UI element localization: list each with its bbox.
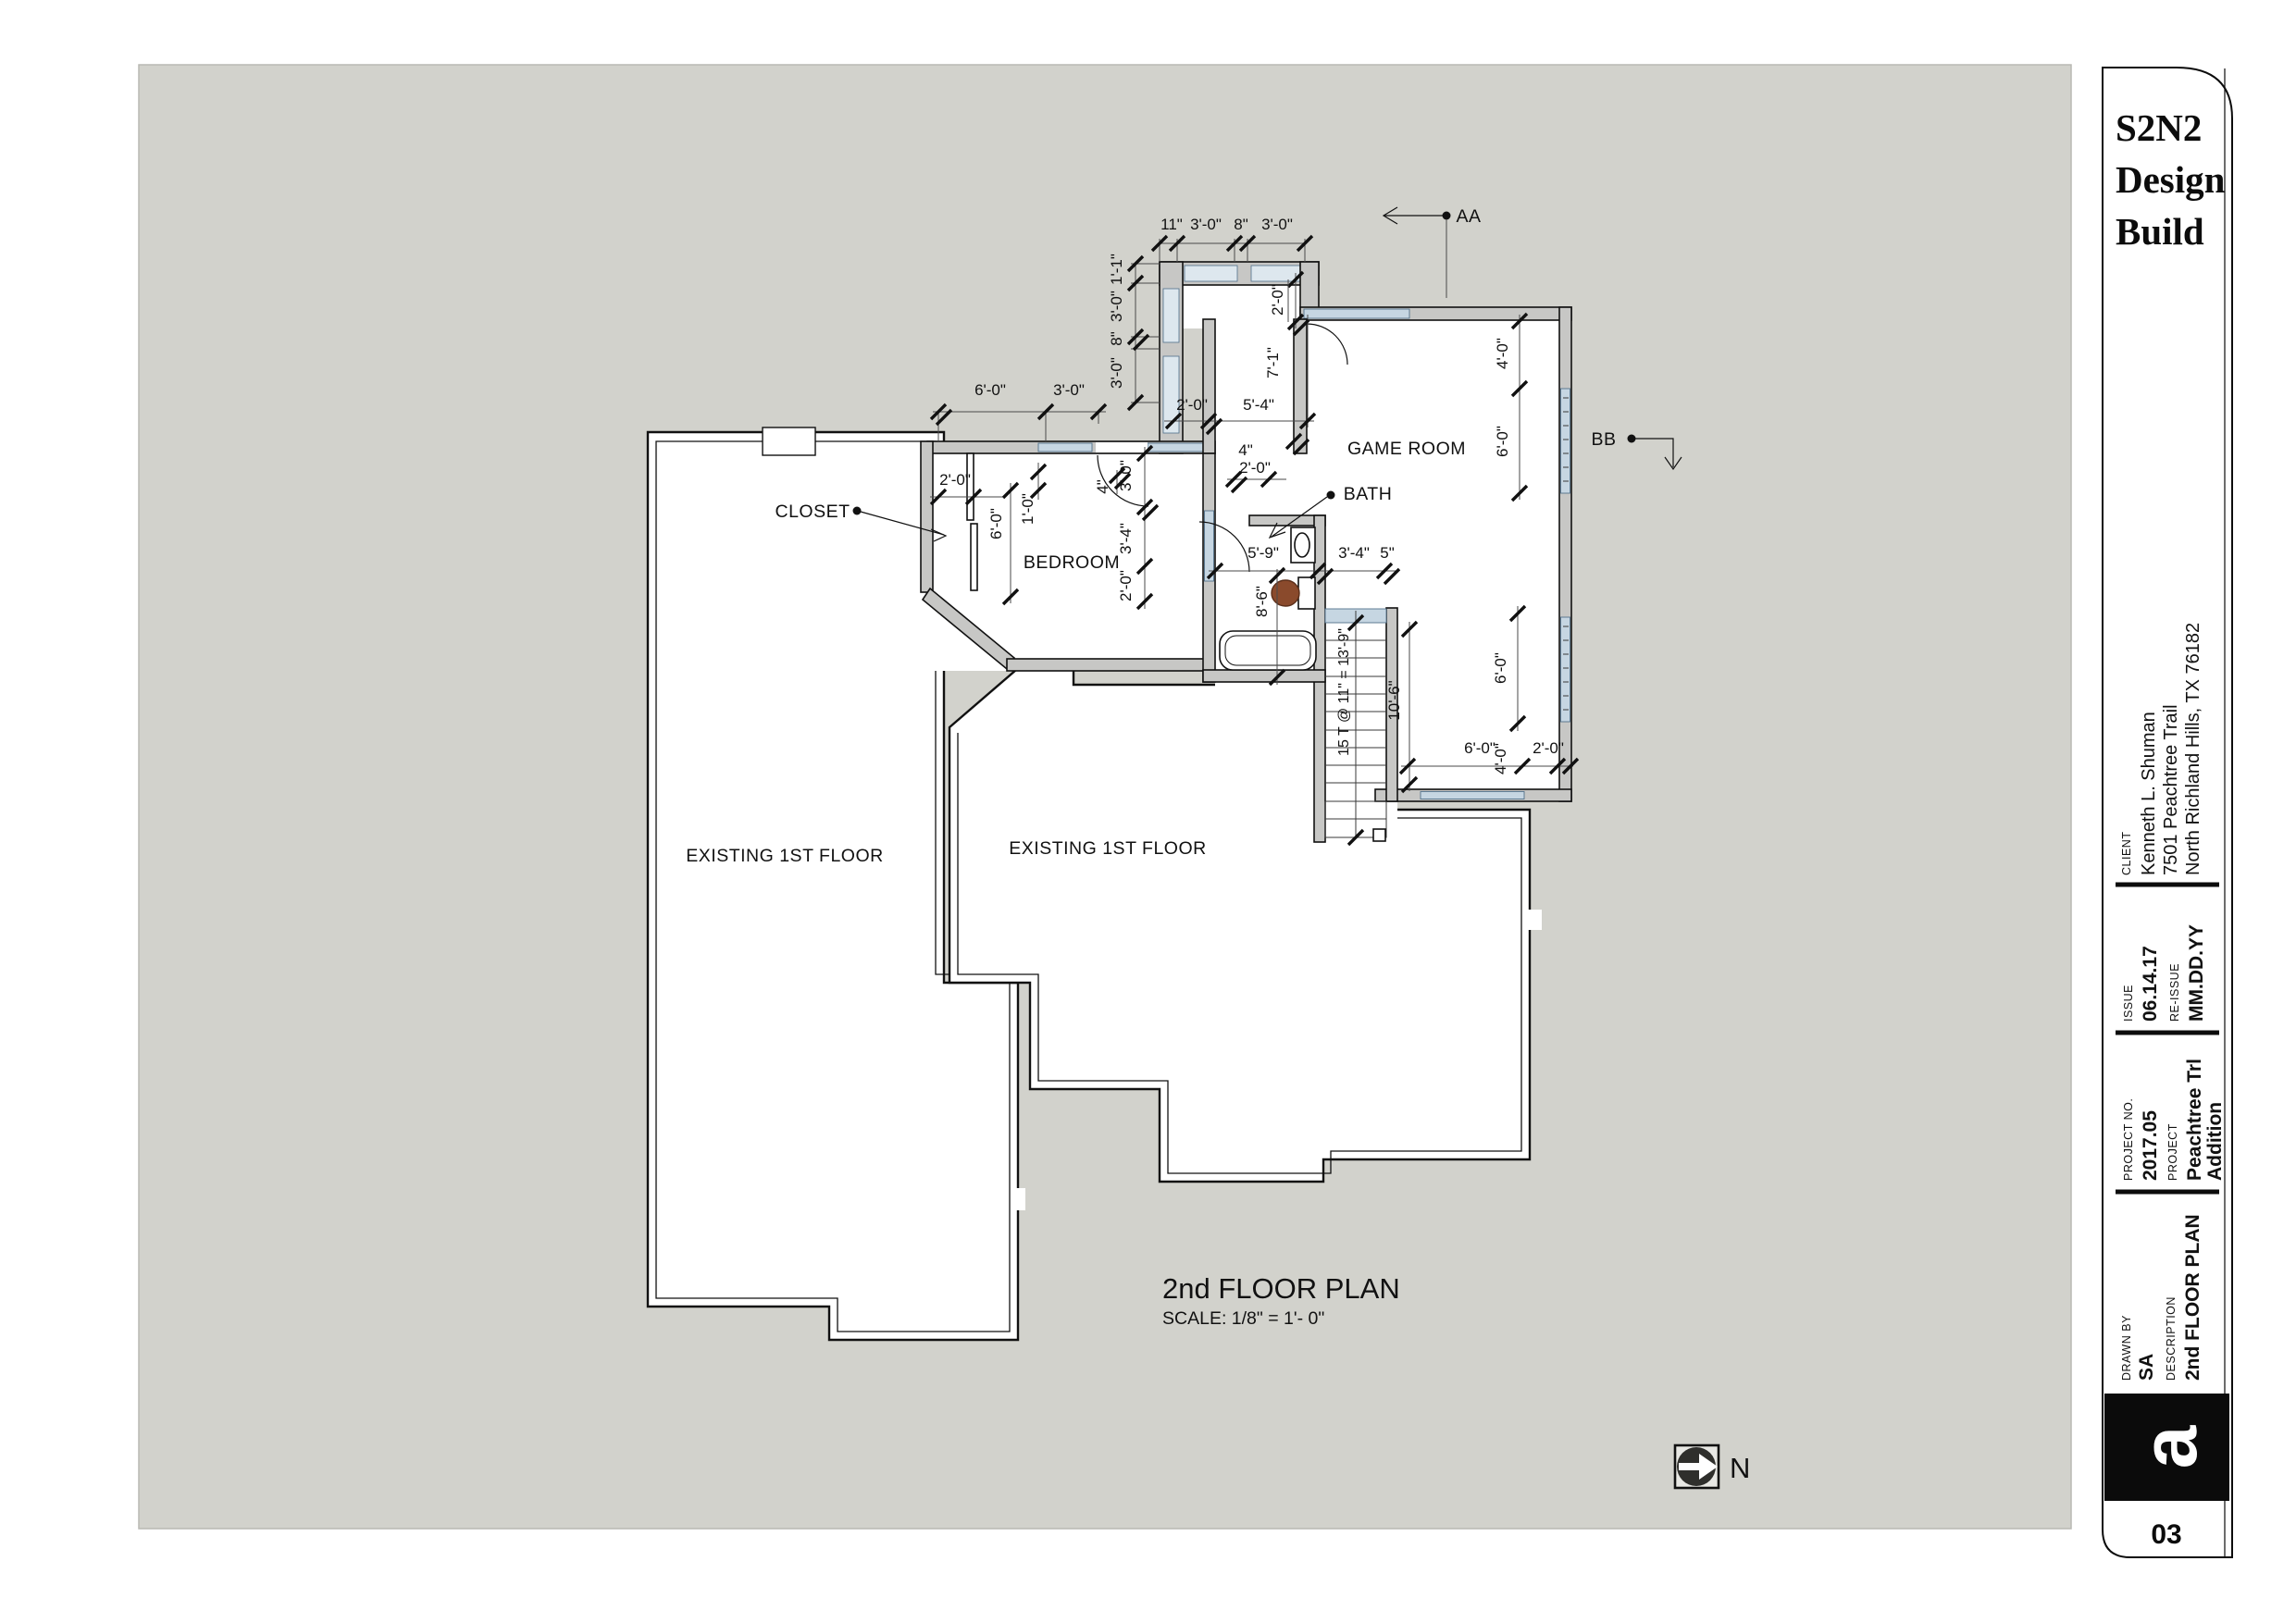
dim-label: 3'-0" bbox=[1053, 381, 1085, 399]
stair-newel bbox=[1373, 829, 1385, 841]
logo-mark: a bbox=[2126, 1424, 2213, 1468]
game-room-north-window bbox=[1304, 309, 1409, 318]
dim-label: 8" bbox=[1108, 331, 1125, 346]
dim-label: 4'-0" bbox=[1494, 338, 1511, 369]
dim-label: 4" bbox=[1238, 441, 1253, 459]
dim-label: 11" bbox=[1160, 216, 1183, 233]
section-label-aa: AA bbox=[1456, 206, 1481, 227]
dim-label: 4" bbox=[1094, 479, 1111, 494]
dim-label: 2'-0" bbox=[1176, 396, 1208, 414]
dim-label: 3'-0" bbox=[1108, 357, 1125, 389]
closet-west-wall bbox=[921, 441, 933, 592]
logo-line: Design bbox=[2116, 158, 2226, 201]
reissue-label: RE-ISSUE bbox=[2168, 963, 2181, 1022]
sheet-number: 03 bbox=[2151, 1519, 2181, 1550]
drawn-by: SA bbox=[2136, 1354, 2157, 1381]
description: 2nd FLOOR PLAN bbox=[2182, 1214, 2203, 1381]
bedroom-south-wall bbox=[1007, 659, 1205, 671]
dim-label: 3'-4" bbox=[1117, 523, 1135, 554]
bathtub bbox=[1220, 631, 1316, 670]
client-city: North Richland Hills, TX 76182 bbox=[2183, 623, 2203, 875]
project-name: Peachtree Trl bbox=[2184, 1059, 2205, 1181]
issue-date: 06.14.17 bbox=[2140, 946, 2161, 1022]
floor-plan-canvas: GAME ROOM BATH CLOSET BEDROOM EXISTING 1… bbox=[0, 0, 2296, 1623]
room-label-existing-center: EXISTING 1ST FLOOR bbox=[1009, 838, 1206, 859]
plan-title: 2nd FLOOR PLAN bbox=[1162, 1272, 1400, 1305]
dim-label: 3'-0" bbox=[1190, 216, 1222, 233]
dim-label: 3'-0" bbox=[1261, 216, 1293, 233]
dim-label: 1'-0" bbox=[1019, 493, 1036, 525]
plan-scale: SCALE: 1/8" = 1'- 0" bbox=[1162, 1308, 1324, 1329]
title-block: S2N2 Design Build CLIENT Kenneth L. Shum… bbox=[2103, 68, 2232, 1557]
room-label-closet: CLOSET bbox=[775, 502, 850, 522]
drawn-by-label: DRAWN BY bbox=[2120, 1315, 2133, 1381]
game-room-east-wall bbox=[1559, 307, 1571, 801]
room-label-existing-left: EXISTING 1ST FLOOR bbox=[686, 846, 883, 866]
section-label-bb: BB bbox=[1591, 429, 1616, 450]
logo-line: Build bbox=[2116, 210, 2204, 253]
client-address: 7501 Peachtree Trail bbox=[2161, 704, 2181, 875]
room-label-bath: BATH bbox=[1344, 484, 1393, 504]
dim-label: 3'-0" bbox=[1117, 460, 1135, 491]
north-label: N bbox=[1730, 1452, 1750, 1484]
game-room-south-window bbox=[1421, 792, 1524, 799]
door-gap bbox=[1011, 1188, 1025, 1210]
dim-label: 6'-0" bbox=[987, 508, 1005, 539]
bay-window bbox=[1185, 266, 1237, 281]
door-gap bbox=[1527, 910, 1542, 930]
project-name2: Addition bbox=[2204, 1102, 2226, 1181]
north-arrow: N bbox=[1675, 1445, 1750, 1488]
dim-label: 10'-6" bbox=[1385, 680, 1403, 720]
dim-label: 2'-0" bbox=[1533, 739, 1564, 757]
tub-south-wall bbox=[1203, 670, 1325, 682]
bay-west-window bbox=[1163, 289, 1179, 342]
dim-label: 6'-0" bbox=[1464, 739, 1496, 757]
reissue-date: MM.DD.YY bbox=[2186, 924, 2207, 1022]
description-label: DESCRIPTION bbox=[2165, 1296, 2178, 1381]
client-name: Kenneth L. Shuman bbox=[2139, 712, 2159, 875]
chimney bbox=[763, 427, 815, 455]
bay-window bbox=[1251, 266, 1307, 281]
dim-label: 5" bbox=[1380, 544, 1395, 562]
room-label-game-room: GAME ROOM bbox=[1347, 439, 1466, 459]
dim-label: 5'-9" bbox=[1247, 544, 1279, 562]
dim-label: 2'-0" bbox=[1117, 570, 1135, 601]
bedroom-window bbox=[1038, 443, 1092, 452]
sink bbox=[1295, 533, 1309, 557]
toilet-bowl bbox=[1272, 580, 1299, 606]
project-label: PROJECT bbox=[2166, 1123, 2179, 1181]
closet-door-panel bbox=[971, 524, 977, 590]
game-room-east-window bbox=[1561, 389, 1570, 493]
dim-label: 2'-0" bbox=[1269, 284, 1286, 316]
dim-label: 6'-0" bbox=[1492, 652, 1509, 684]
dim-label: 6'-0" bbox=[1494, 426, 1511, 457]
toilet-tank bbox=[1298, 577, 1315, 609]
bedroom-door-opening bbox=[1096, 442, 1148, 452]
dim-label: 2'-0" bbox=[1239, 459, 1271, 477]
dim-label: 2'-0" bbox=[939, 471, 971, 489]
stair-note: 15 T @ 11" = 13'-9" bbox=[1336, 628, 1352, 756]
dim-label: 3'-4" bbox=[1338, 544, 1370, 562]
dim-label: 4'-0" bbox=[1492, 743, 1509, 774]
client-label: CLIENT bbox=[2120, 832, 2133, 875]
issue-label: ISSUE bbox=[2122, 985, 2135, 1022]
dim-label: 3'-0" bbox=[1108, 291, 1125, 322]
game-room-east-window bbox=[1561, 617, 1570, 722]
dim-label: 7'-1" bbox=[1264, 347, 1282, 378]
room-label-bedroom: BEDROOM bbox=[1024, 552, 1120, 573]
drawing-sheet: GAME ROOM BATH CLOSET BEDROOM EXISTING 1… bbox=[0, 0, 2296, 1623]
dim-label: 6'-0" bbox=[974, 381, 1006, 399]
logo-line: S2N2 bbox=[2116, 106, 2202, 149]
dim-label: 5'-4" bbox=[1243, 396, 1274, 414]
dim-label: 8" bbox=[1234, 216, 1248, 233]
dim-label: 1'-1" bbox=[1108, 254, 1125, 285]
project-no-label: PROJECT NO. bbox=[2122, 1098, 2135, 1181]
dim-label: 8'-6" bbox=[1253, 586, 1271, 617]
project-no: 2017.05 bbox=[2140, 1110, 2161, 1181]
